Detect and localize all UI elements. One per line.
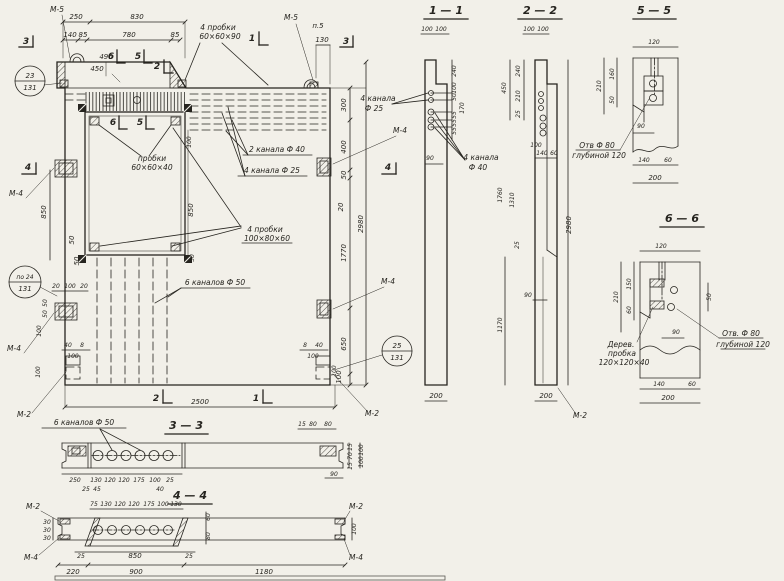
dim: 130 xyxy=(100,501,112,508)
dim: 90 xyxy=(426,155,434,162)
dim: 100 xyxy=(149,477,161,484)
section-title: 2 — 2 xyxy=(523,4,557,17)
dim: 150 xyxy=(626,278,633,290)
note-leaders xyxy=(100,429,140,450)
mark-6: 6 xyxy=(108,52,114,62)
dim: 450 xyxy=(501,82,508,94)
window-frame-inner xyxy=(89,116,181,251)
dim: 90 xyxy=(637,123,645,130)
dim: 25 xyxy=(515,110,522,118)
dim: 20 xyxy=(52,283,60,290)
dim: 160 xyxy=(609,68,616,80)
label-m2: М-2 xyxy=(17,410,31,419)
dim: 90 xyxy=(524,292,532,299)
dim: 50 xyxy=(451,93,458,101)
dim: 120 xyxy=(118,477,130,484)
note-otv: Отв Ф 80 xyxy=(579,141,615,150)
corner-embeds-m2 xyxy=(66,356,330,379)
dim: 30 xyxy=(43,519,51,526)
scan-edge-artifact xyxy=(55,576,445,580)
note-leaders xyxy=(185,43,268,85)
section-title: 6 — 6 xyxy=(665,212,699,225)
label-m5: М-5 xyxy=(50,5,64,14)
dim: 100 xyxy=(358,444,365,456)
dim: 40 xyxy=(315,342,323,349)
dim: 100 xyxy=(421,26,433,33)
dim: 240 xyxy=(451,65,458,77)
dim: 25 xyxy=(77,553,85,560)
note-otv: Отв. Ф 80 xyxy=(722,329,760,338)
leader xyxy=(677,309,719,338)
channel-hole xyxy=(540,115,546,121)
mark-6: 6 xyxy=(110,118,116,128)
embed xyxy=(320,446,336,456)
dim: 200 xyxy=(539,392,553,400)
dim: 250 xyxy=(69,477,81,484)
section-2-2: 2 — 2 100 100 240 210 25 450 100 140 60 … xyxy=(497,4,587,420)
channel-hole xyxy=(539,99,544,104)
middle-block xyxy=(85,518,188,546)
dim: 55 xyxy=(451,127,458,135)
dim: 50 xyxy=(42,299,49,307)
dim: 25 xyxy=(166,477,174,484)
dim: 30 xyxy=(43,535,51,542)
section-title: 1 — 1 xyxy=(429,4,463,17)
dim: 100 xyxy=(331,365,338,377)
channel-hole xyxy=(540,123,546,129)
dim: 170 xyxy=(459,102,466,114)
dim: 130 xyxy=(170,501,182,508)
section-title: 3 — 3 xyxy=(169,419,203,432)
inner-detail xyxy=(633,58,663,122)
lintel-hatch xyxy=(85,92,185,111)
dim: 200 xyxy=(648,174,662,182)
mark-2: 2 xyxy=(154,62,160,72)
dim: 20 xyxy=(337,202,345,211)
lifting-hook-icon xyxy=(70,54,84,62)
label-m4: М-4 xyxy=(24,553,38,562)
dim: 900 xyxy=(129,568,143,576)
note-derev: пробка xyxy=(608,349,636,358)
section-3-3: 3 — 3 6 каналов Ф 50 15 80 80 15 70 15 1… xyxy=(42,418,365,493)
dim: 100 xyxy=(451,82,458,94)
dim: 400 xyxy=(340,140,348,154)
note-leaders xyxy=(392,93,428,104)
dim: 220 xyxy=(66,568,80,576)
dim: 15 xyxy=(347,443,354,451)
mark-4: 4 xyxy=(24,163,31,173)
dim: 210 xyxy=(515,90,522,102)
dim: 50 xyxy=(189,254,196,262)
note-probki-win: 60×60×40 xyxy=(131,163,172,172)
dim: 1170 xyxy=(497,317,504,332)
dim: 85 xyxy=(171,31,180,39)
dim: 210 xyxy=(596,80,603,92)
dim: 40 xyxy=(156,486,164,493)
dim: 30 xyxy=(43,527,51,534)
note-probki-win: пробки xyxy=(138,154,166,163)
dim: 175 xyxy=(133,477,145,484)
section-profile xyxy=(62,443,343,468)
dim: 100 xyxy=(36,325,43,337)
section-profile xyxy=(425,60,447,385)
window-corner-embeds xyxy=(78,104,192,263)
dim: 45 xyxy=(93,486,101,493)
dim: 175 xyxy=(143,501,155,508)
mark-1: 1 xyxy=(249,34,255,44)
main-view: 250 830 140 85 780 85 490 450 130 4 проб… xyxy=(7,5,428,419)
embed-plate xyxy=(60,80,68,87)
embed-plate xyxy=(178,80,186,87)
dim: 85 xyxy=(79,31,88,39)
dim: 100 xyxy=(537,26,549,33)
dim: 450 xyxy=(90,65,104,73)
pos-top: по 24 xyxy=(16,274,33,281)
dim: 55 xyxy=(451,111,458,119)
dim: 120 xyxy=(648,39,660,46)
dim: 120 xyxy=(128,501,140,508)
dim: 50 xyxy=(706,293,713,301)
dim: 20 xyxy=(80,283,88,290)
leader xyxy=(344,511,350,521)
note-kanalov-f50: 6 каналов Ф 50 xyxy=(54,418,115,427)
note-otv: глубиной 120 xyxy=(716,340,770,349)
dim: 25 xyxy=(82,486,90,493)
label-m4: М-4 xyxy=(393,126,407,135)
dim: 8 xyxy=(80,342,84,349)
dim: 100 xyxy=(523,26,535,33)
note-derev: Дерев. xyxy=(607,340,635,349)
dim: 50 xyxy=(609,96,616,104)
leader xyxy=(333,287,384,309)
position-circle: 23 131 xyxy=(15,66,62,96)
note-leaders xyxy=(155,288,181,303)
dim: 80 xyxy=(309,421,317,428)
pos-bot: 131 xyxy=(23,84,36,92)
note-kanala-f40: 4 канала xyxy=(463,153,499,162)
dim: 60 xyxy=(626,306,633,314)
dim: 50 xyxy=(42,310,49,318)
dim: 100 xyxy=(186,136,193,148)
dim: 100 xyxy=(351,523,358,535)
mark-4: 4 xyxy=(384,163,391,173)
dim: 2980 xyxy=(357,215,365,233)
dim: 15 xyxy=(298,421,306,428)
note-derev: 120×120×40 xyxy=(599,358,650,367)
dim: 50 xyxy=(68,235,76,244)
leader xyxy=(637,307,653,342)
dim: 210 xyxy=(613,291,620,303)
dim: 300 xyxy=(340,98,348,112)
dim: 100 xyxy=(530,142,542,149)
dim: 780 xyxy=(122,31,136,39)
section-title: 5 — 5 xyxy=(637,4,671,17)
dim: 200 xyxy=(429,392,443,400)
channel-hole xyxy=(539,92,544,97)
dim: 15 xyxy=(347,462,354,470)
dim: 8 xyxy=(303,342,307,349)
break-line xyxy=(640,346,700,354)
label-p5: п.5 xyxy=(312,22,324,30)
pos-top: 25 xyxy=(393,342,402,350)
mark-5: 5 xyxy=(137,118,143,128)
dim: 650 xyxy=(340,337,348,351)
dim-lines-top xyxy=(61,20,330,84)
dim: 140 xyxy=(653,381,665,388)
note-otv: глубиной 120 xyxy=(572,151,626,160)
dim: 100 xyxy=(307,353,319,360)
label-m4: М-4 xyxy=(7,344,21,353)
channel-hole xyxy=(540,130,546,136)
dim: 90 xyxy=(672,329,680,336)
dim: 850 xyxy=(128,552,142,560)
blueprint-page: 250 830 140 85 780 85 490 450 130 4 проб… xyxy=(0,0,784,581)
dim: 140 xyxy=(536,150,548,157)
dim: 100 xyxy=(67,353,79,360)
dim: 120 xyxy=(655,243,667,250)
dim: 140 xyxy=(638,157,650,164)
dim: 1180 xyxy=(255,568,273,576)
dim: 830 xyxy=(130,13,144,21)
embed xyxy=(68,446,86,456)
dim: 100 xyxy=(358,456,365,468)
channel-hole xyxy=(539,106,544,111)
section-1-1: 1 — 1 100 100 240 100 50 170 55 55 55 90… xyxy=(421,4,499,401)
break-line xyxy=(633,146,678,152)
inner-slant xyxy=(547,250,557,257)
label-m2: М-2 xyxy=(26,502,40,511)
note-kanala-f25: 4 канала Ф 25 xyxy=(244,166,300,175)
leader xyxy=(558,388,576,414)
dim: 2980 xyxy=(565,216,573,234)
mark-5: 5 xyxy=(135,52,141,62)
mark-1: 1 xyxy=(253,394,259,404)
window-leaders xyxy=(99,125,241,246)
mark-2: 2 xyxy=(153,394,159,404)
note-probki-big: 100×80×60 xyxy=(244,234,290,243)
dim: 100 xyxy=(157,501,169,508)
note-kanala-f40: Ф 40 xyxy=(469,163,488,172)
dim: 1770 xyxy=(340,244,348,262)
dim: 70 xyxy=(347,452,354,460)
panel-working-drawing: 250 830 140 85 780 85 490 450 130 4 проб… xyxy=(0,0,784,581)
dim: 25 xyxy=(514,241,521,249)
leader xyxy=(296,24,313,80)
label-m5: М-5 xyxy=(284,13,298,22)
dim: 2500 xyxy=(191,398,209,406)
dim: 240 xyxy=(515,65,522,77)
dim: 850 xyxy=(40,205,48,219)
pos-bot: 131 xyxy=(18,285,31,293)
dim: 100 xyxy=(435,26,447,33)
dim: 50 xyxy=(340,170,348,179)
dim: 60 xyxy=(205,513,212,521)
channels-vertical-f50 xyxy=(97,258,167,383)
dim: 80 xyxy=(205,532,212,540)
note-probki-top: 60×60×90 xyxy=(199,32,240,41)
dim: 120 xyxy=(104,477,116,484)
dim: 100 xyxy=(64,283,76,290)
dim: 60 xyxy=(550,150,558,157)
dim: 130 xyxy=(90,477,102,484)
dim: 90 xyxy=(330,471,338,478)
dim: 1310 xyxy=(509,192,516,207)
dim: 60 xyxy=(664,157,672,164)
section-5-5: 5 — 5 120 160 210 50 90 140 60 200 Отв Ф… xyxy=(572,4,678,183)
note-kanala-f40: 2 канала Ф 40 xyxy=(249,145,305,154)
dim: 120 xyxy=(114,501,126,508)
note-probki-big: 4 пробки xyxy=(247,225,283,234)
label-m2: М-2 xyxy=(365,409,379,418)
dim: 250 xyxy=(69,13,83,21)
dim: 80 xyxy=(324,421,332,428)
dim: 200 xyxy=(661,394,675,402)
dim: 130 xyxy=(315,36,329,44)
dim: 60 xyxy=(688,381,696,388)
position-circle: по 24 131 xyxy=(9,266,57,298)
leader xyxy=(344,539,350,555)
section-profile xyxy=(58,518,345,540)
embed-plate-m5 xyxy=(310,82,318,88)
note-probki-top: 4 пробки xyxy=(200,23,236,32)
pos-top: 23 xyxy=(26,72,35,80)
mark-3: 3 xyxy=(343,37,349,47)
section-6-6: 6 — 6 120 150 210 60 50 90 140 60 200 От… xyxy=(599,212,770,403)
label-m4: М-4 xyxy=(349,553,363,562)
pos-bot: 131 xyxy=(390,354,403,362)
mark-3: 3 xyxy=(23,37,29,47)
label-m2: М-2 xyxy=(349,502,363,511)
window-opening xyxy=(85,112,185,255)
note-kanala-f25-right: Ф 25 xyxy=(365,104,384,113)
dim: 75 xyxy=(90,501,98,508)
label-m4: М-4 xyxy=(381,277,395,286)
note-kanalov-f50: 6 каналов Ф 50 xyxy=(185,278,246,287)
dim: 25 xyxy=(185,553,193,560)
inner-detail xyxy=(640,262,678,318)
dim-extensions xyxy=(431,93,452,127)
section-4-4: 4 — 4 75 130 120 120 175 100 130 60 80 1… xyxy=(24,489,363,576)
note-leaders xyxy=(226,120,248,155)
dim: 100 xyxy=(35,366,42,378)
dim: 50 xyxy=(73,256,81,265)
dim: 1760 xyxy=(497,187,504,202)
dim: 40 xyxy=(64,342,72,349)
dim: 55 xyxy=(451,119,458,127)
label-m4: М-4 xyxy=(9,189,23,198)
